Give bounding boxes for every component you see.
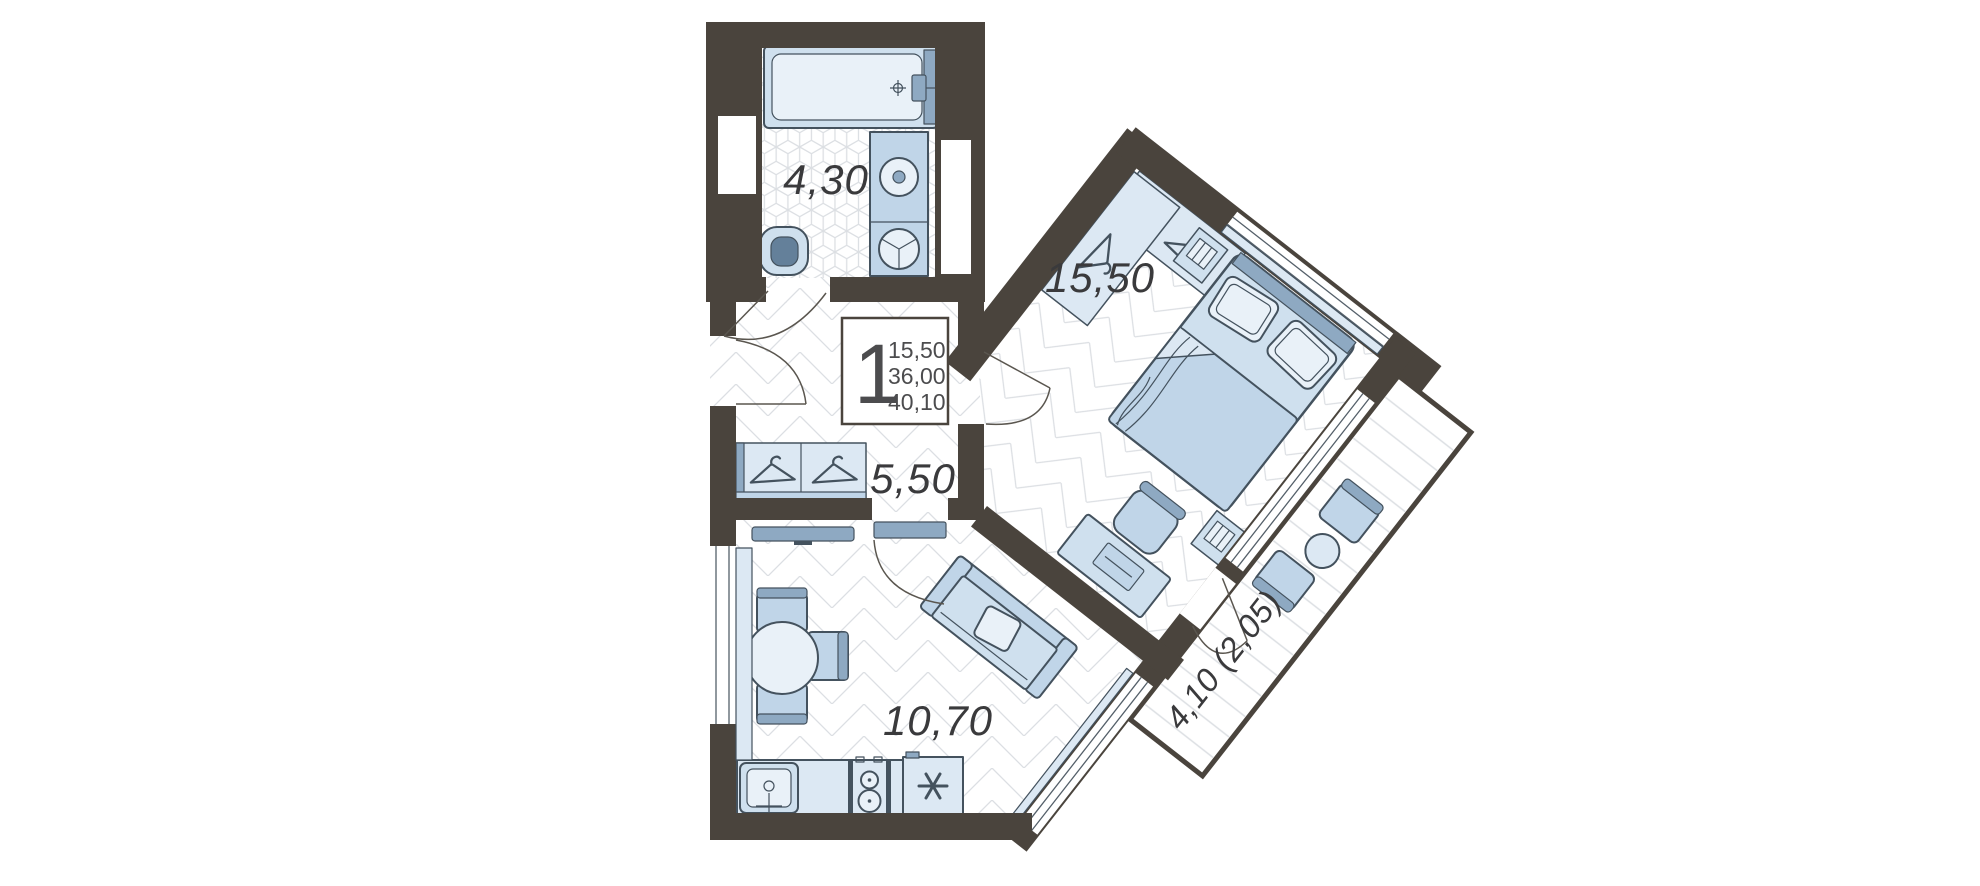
kitchen-row — [737, 752, 963, 815]
hall-wardrobe — [736, 443, 866, 499]
fridge — [903, 752, 963, 815]
room-label-kitchen-living: 10,70 — [883, 697, 993, 744]
unit-total-area: 40,10 — [888, 389, 946, 415]
bathroom-right-niche — [941, 140, 971, 274]
bathtub-icon — [764, 46, 938, 128]
room-label-bedroom: 15,50 — [1045, 254, 1155, 301]
room-label-bathroom: 4,30 — [783, 156, 869, 203]
unit-apartment-area: 36,00 — [888, 363, 946, 389]
floor-plan-canvas: 4,10 (2,05) — [0, 0, 1980, 886]
window-sill — [736, 548, 752, 760]
round-dining-table-icon — [746, 622, 818, 694]
unit-living-area: 15,50 — [888, 337, 946, 363]
washstand-column — [870, 132, 928, 276]
bathroom-left-niche — [718, 116, 756, 194]
unit-info-box: 1 15,50 36,00 40,10 — [842, 318, 948, 424]
washing-machine-drum-icon — [879, 229, 919, 269]
floor-plan-drawing: 4,10 (2,05) — [0, 0, 1980, 886]
room-label-hallway: 5,50 — [870, 455, 956, 502]
door-leaf — [874, 522, 946, 538]
kitchen-sink-icon — [740, 763, 798, 815]
bath-door-threshold-floor — [764, 277, 830, 303]
round-basin-icon — [880, 158, 918, 196]
